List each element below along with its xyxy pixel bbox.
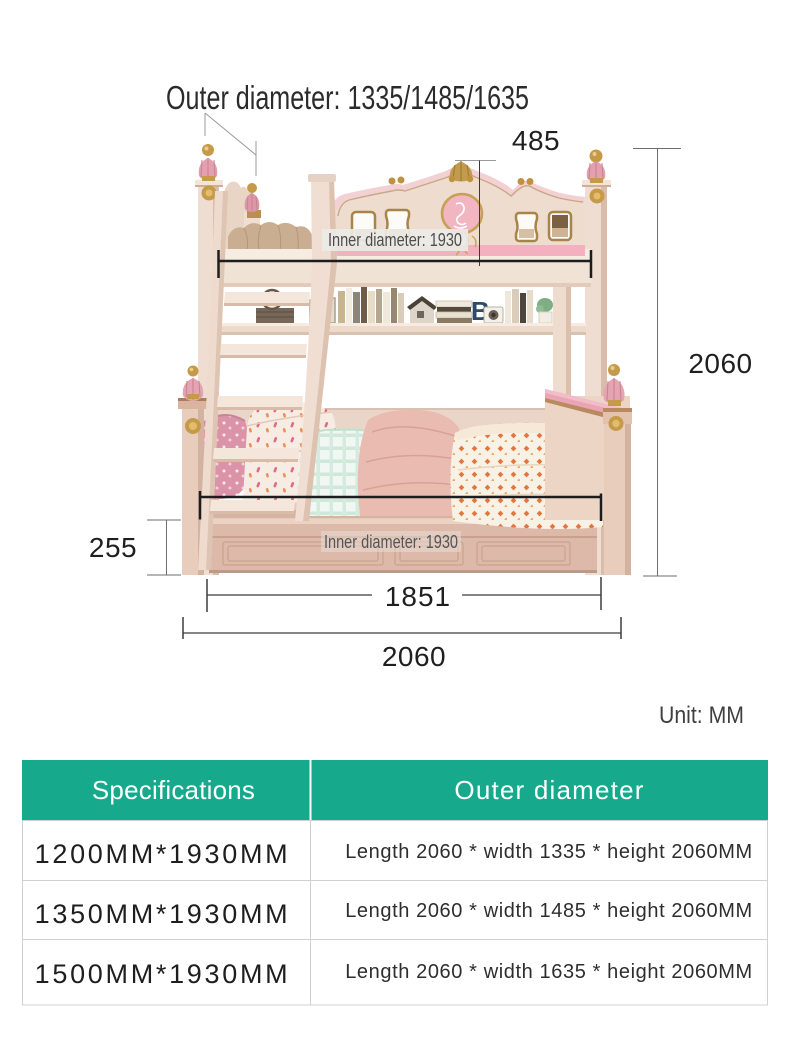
svg-text:Inner diameter: 1930: Inner diameter: 1930 (328, 230, 462, 250)
svg-text:485: 485 (512, 125, 560, 156)
svg-text:2060: 2060 (688, 348, 752, 379)
svg-text:255: 255 (89, 532, 137, 563)
svg-text:Length 2060 * width 1335 * hei: Length 2060 * width 1335 * height 2060MM (345, 841, 753, 863)
svg-text:Specifications: Specifications (92, 775, 255, 805)
svg-text:1851: 1851 (385, 581, 451, 612)
svg-text:1200MM*1930MM: 1200MM*1930MM (35, 839, 291, 869)
svg-text:Length 2060 * width 1485 * hei: Length 2060 * width 1485 * height 2060MM (345, 900, 753, 922)
svg-text:Length 2060 * width 1635 * hei: Length 2060 * width 1635 * height 2060MM (345, 961, 753, 983)
svg-text:Unit: MM: Unit: MM (659, 702, 744, 729)
svg-text:Outer diameter: 1335/1485/1635: Outer diameter: 1335/1485/1635 (166, 79, 529, 116)
svg-text:1500MM*1930MM: 1500MM*1930MM (35, 959, 291, 989)
svg-text:2060: 2060 (382, 641, 446, 672)
svg-text:1350MM*1930MM: 1350MM*1930MM (35, 899, 291, 929)
svg-text:Inner diameter: 1930: Inner diameter: 1930 (324, 532, 458, 552)
svg-text:Outer diameter: Outer diameter (454, 775, 644, 805)
